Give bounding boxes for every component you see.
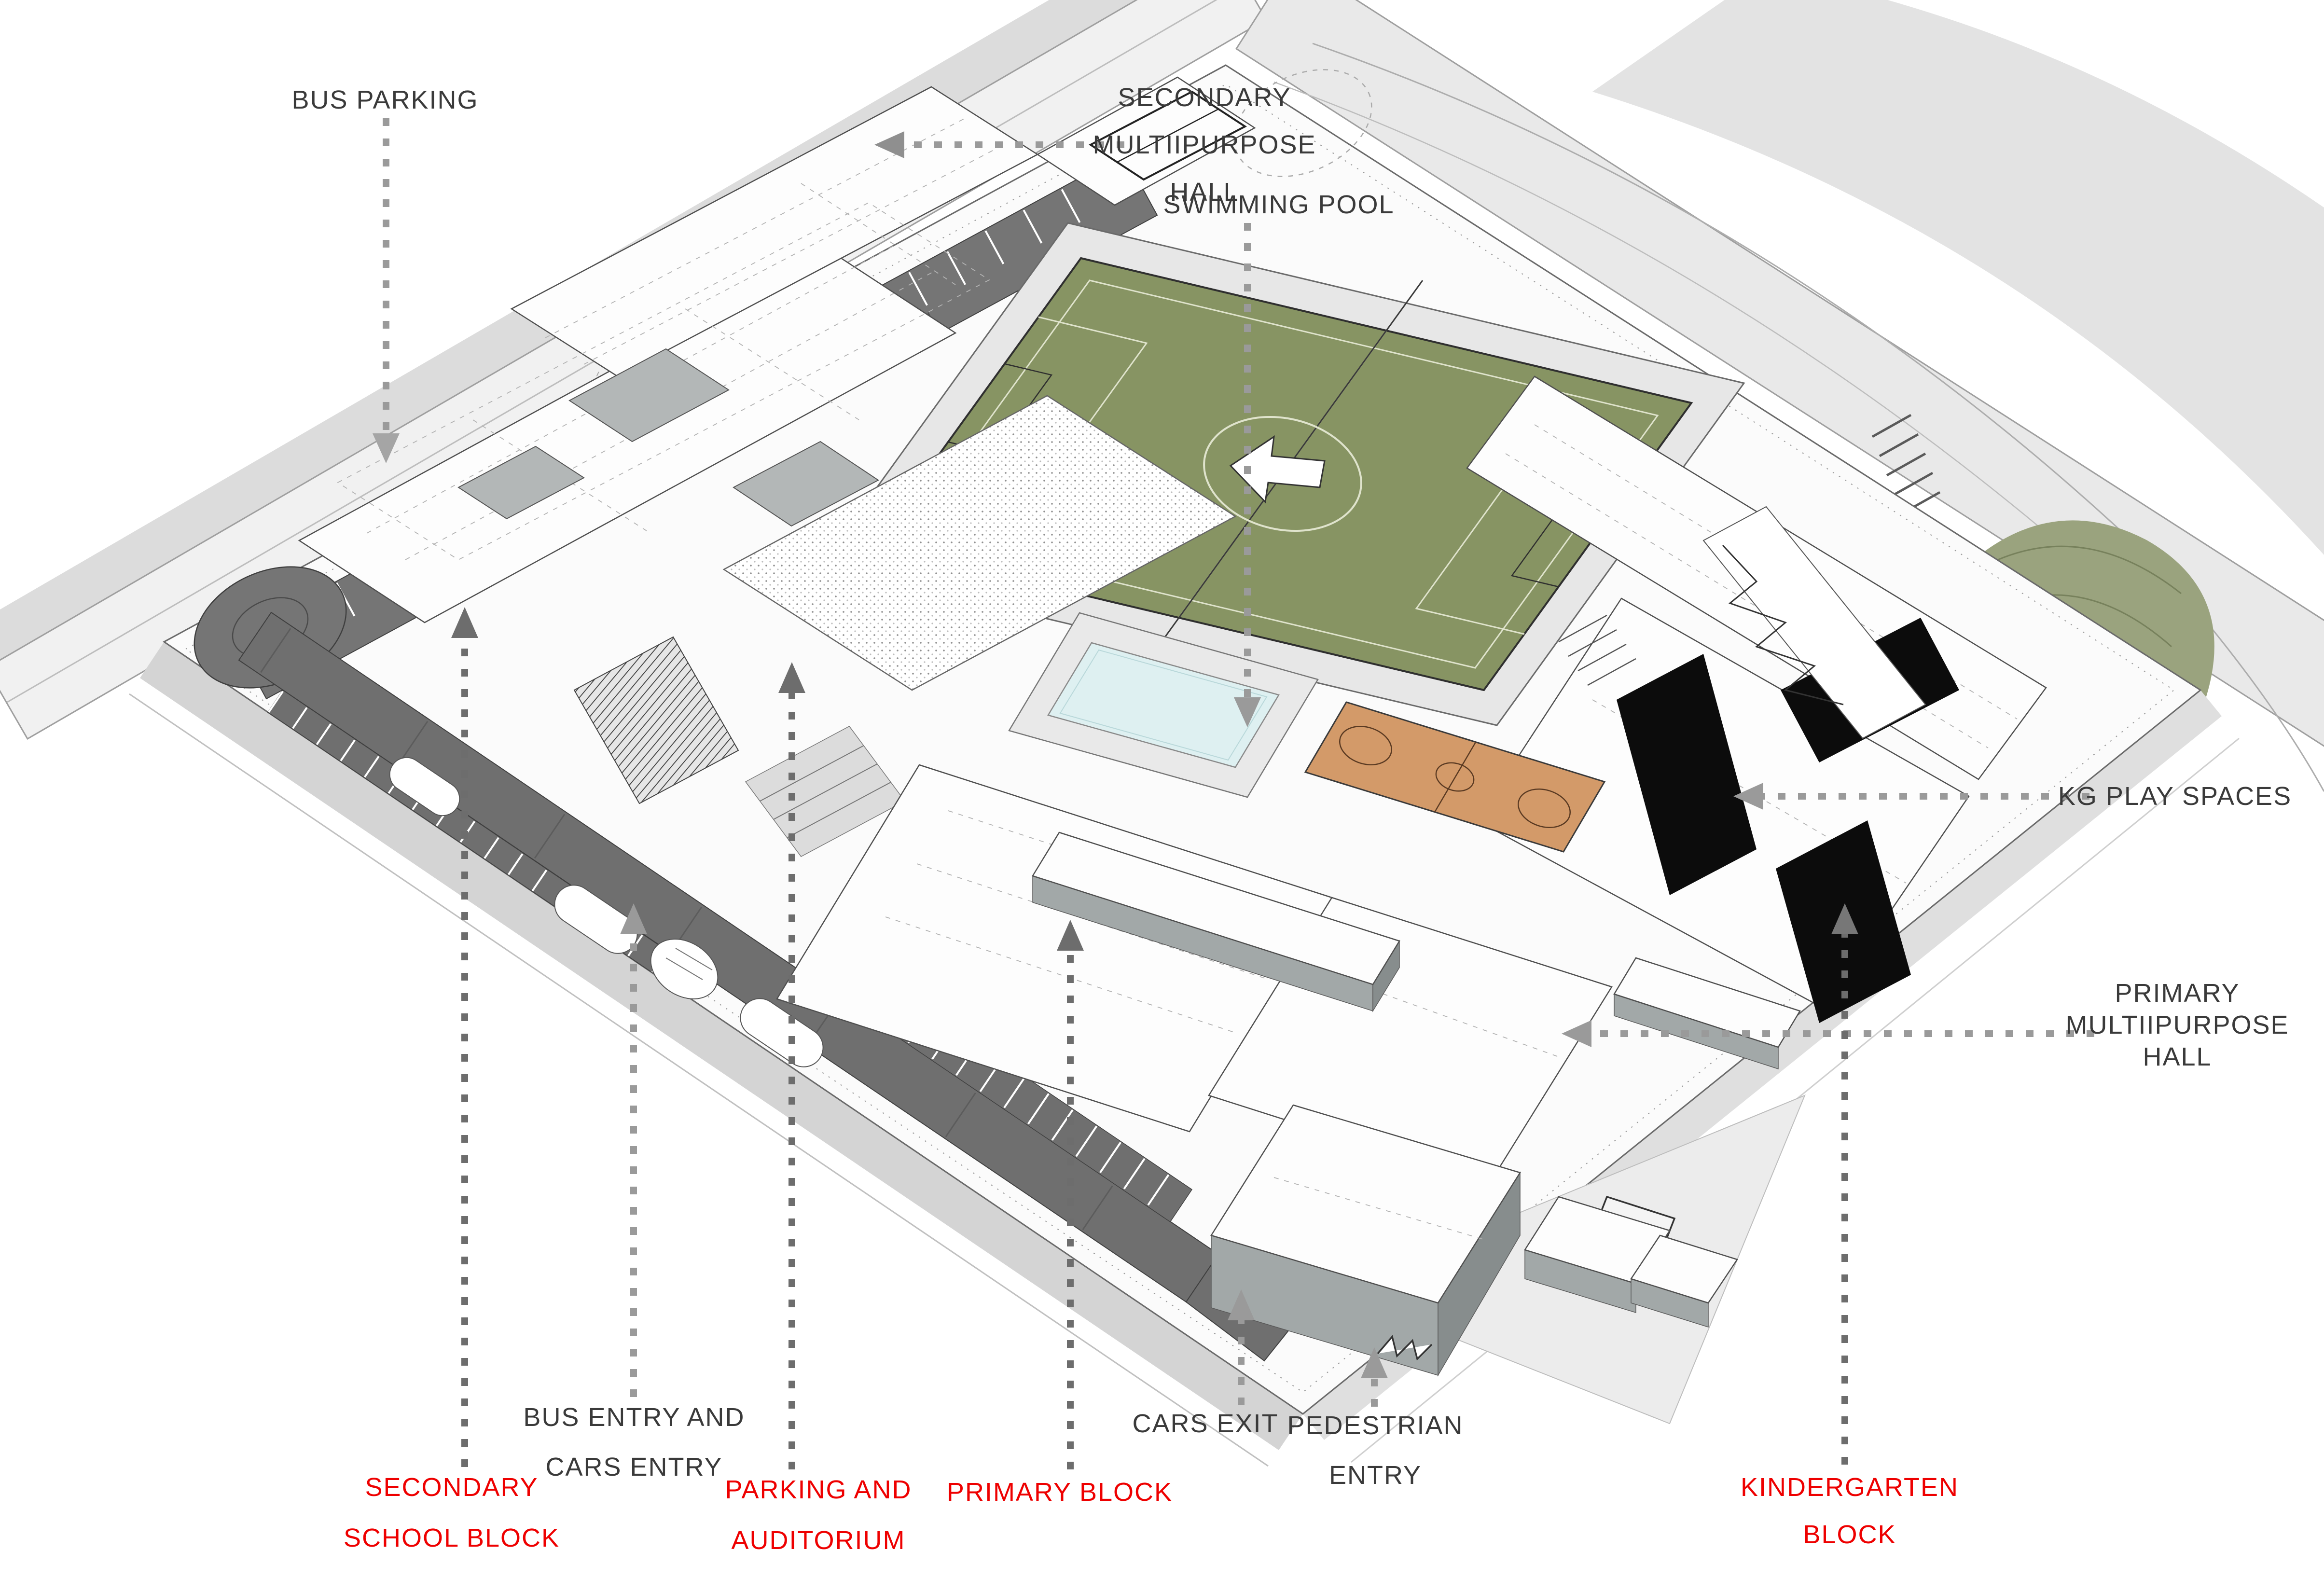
label-kindergarten-block-2: BLOCK <box>1803 1520 1896 1549</box>
label-primary-hall-1: PRIMARY <box>2115 979 2240 1008</box>
label-secondary-hall-2: MULTIIPURPOSE <box>1093 130 1316 159</box>
label-secondary-block-1: SECONDARY <box>365 1473 538 1502</box>
label-kg-play-spaces: KG PLAY SPACES <box>2058 782 2292 811</box>
label-pedestrian-entry-1: PEDESTRIAN <box>1287 1411 1463 1440</box>
label-bus-entry-2: CARS ENTRY <box>545 1453 722 1481</box>
label-primary-hall-2: MULTIIPURPOSE <box>2065 1010 2289 1039</box>
label-parking-auditorium-1: PARKING AND <box>725 1475 912 1504</box>
label-parking-auditorium-2: AUDITORIUM <box>731 1526 905 1555</box>
label-secondary-block-2: SCHOOL BLOCK <box>344 1523 560 1552</box>
label-swimming-pool: SWIMMING POOL <box>1163 190 1394 219</box>
label-bus-entry-1: BUS ENTRY AND <box>523 1403 745 1432</box>
site-plan-figure: BUS PARKING SECONDARY MULTIIPURPOSE HALL… <box>0 0 2324 1578</box>
label-cars-exit: CARS EXIT <box>1132 1409 1278 1438</box>
label-secondary-hall-1: SECONDARY <box>1118 83 1291 112</box>
label-primary-hall-3: HALL <box>2143 1042 2212 1071</box>
label-primary-block: PRIMARY BLOCK <box>947 1478 1173 1507</box>
label-kindergarten-block-1: KINDERGARTEN <box>1741 1473 1959 1502</box>
label-bus-parking: BUS PARKING <box>291 85 478 114</box>
site-plan-svg: BUS PARKING SECONDARY MULTIIPURPOSE HALL… <box>0 0 2324 1578</box>
label-pedestrian-entry-2: ENTRY <box>1329 1461 1422 1490</box>
